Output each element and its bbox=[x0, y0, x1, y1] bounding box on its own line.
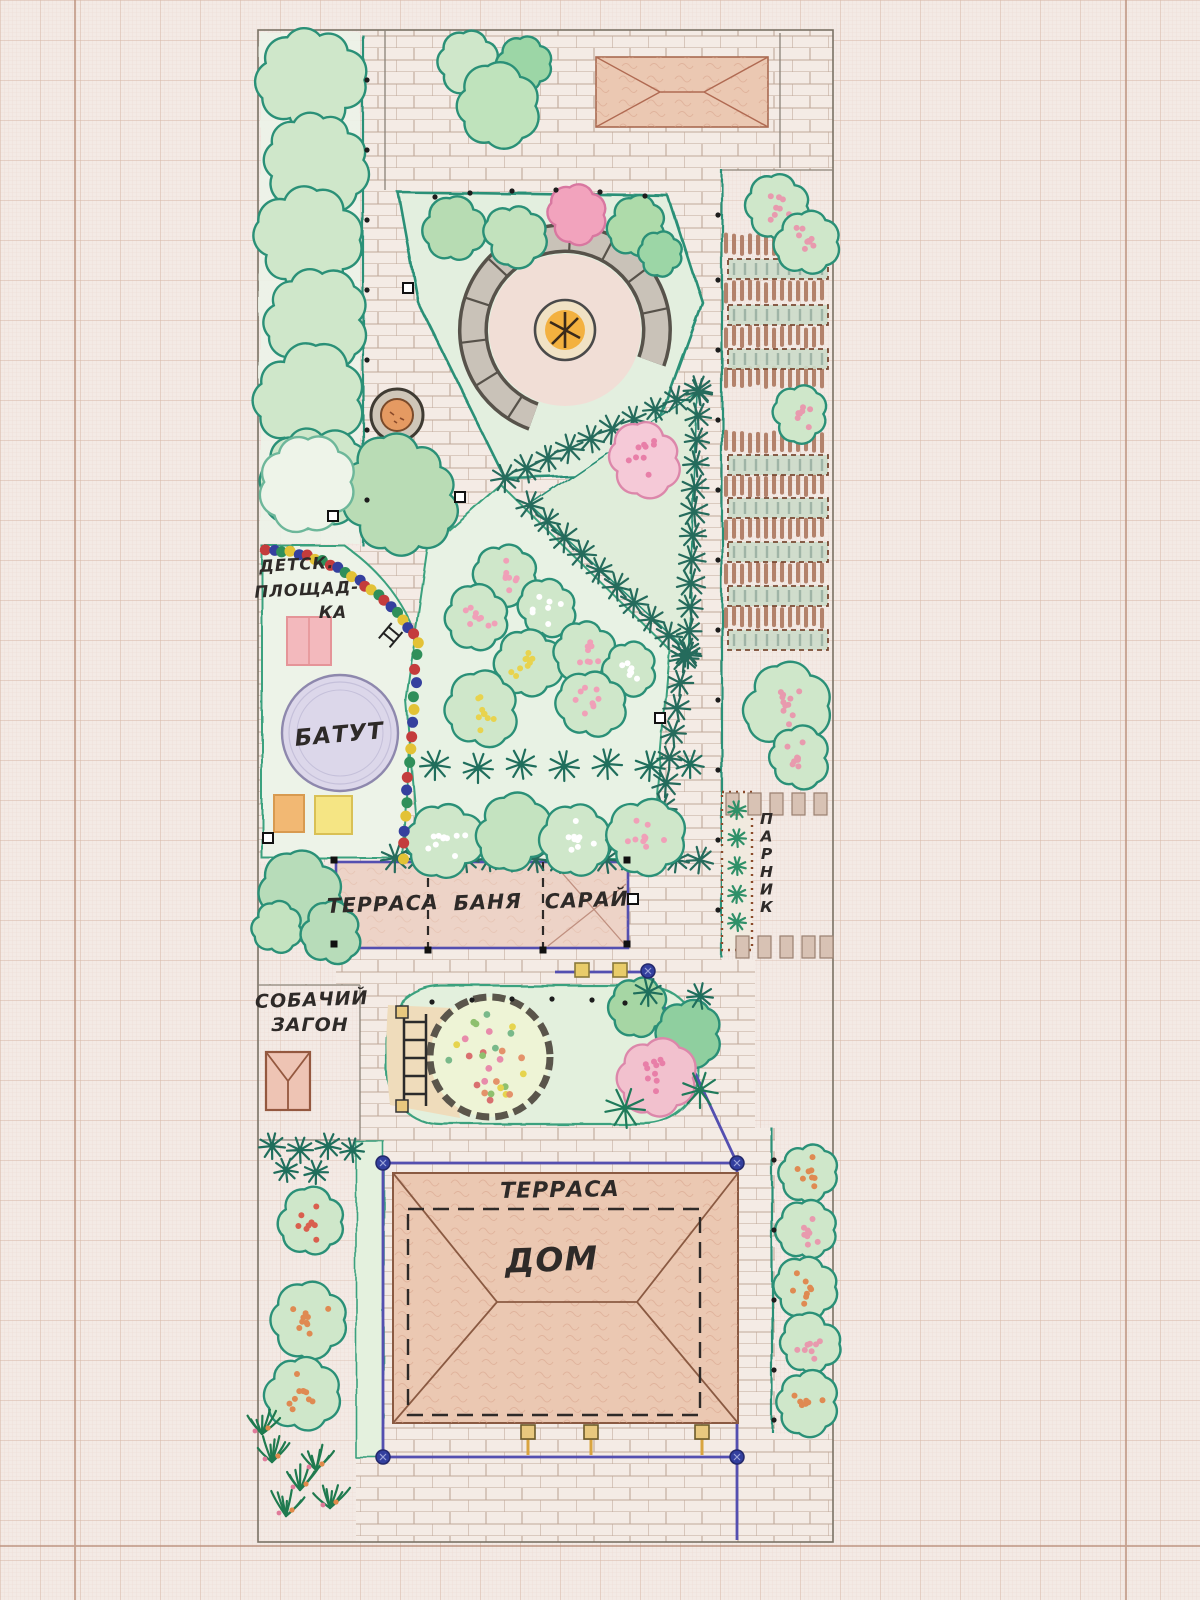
pen-dot bbox=[364, 427, 369, 432]
bead bbox=[413, 637, 424, 648]
tilled-row bbox=[726, 281, 822, 301]
pen-dot bbox=[509, 188, 514, 193]
pen-dot bbox=[715, 487, 720, 492]
terrace-label: ТЕРРАСА bbox=[326, 890, 439, 918]
fence-corner-marker bbox=[730, 1156, 744, 1170]
vegetable-bed bbox=[728, 305, 828, 325]
pen-dot bbox=[715, 767, 720, 772]
pen-dot bbox=[715, 697, 720, 702]
bead bbox=[404, 757, 415, 768]
corner-square-marker bbox=[425, 947, 432, 954]
bead bbox=[399, 826, 410, 837]
bead bbox=[408, 691, 419, 702]
vegetable-bed bbox=[728, 630, 828, 650]
tilled-row bbox=[726, 563, 822, 583]
vegetable-bed bbox=[728, 586, 828, 606]
bead bbox=[260, 544, 271, 555]
pen-dot bbox=[364, 287, 369, 292]
bead bbox=[401, 785, 412, 796]
fence-corner-marker bbox=[641, 964, 655, 978]
vegetable-bed bbox=[728, 349, 828, 369]
corner-square-marker bbox=[331, 941, 338, 948]
open-square-marker bbox=[263, 833, 273, 843]
bead bbox=[411, 649, 422, 660]
greenhouse-label: ПАРНИК bbox=[760, 810, 775, 916]
open-square-marker bbox=[455, 492, 465, 502]
open-square-marker bbox=[628, 894, 638, 904]
pen-dot bbox=[469, 997, 474, 1002]
banya-label: БАНЯ bbox=[453, 889, 522, 915]
bead bbox=[411, 677, 422, 688]
fence-corner-marker bbox=[376, 1156, 390, 1170]
bead bbox=[405, 743, 416, 754]
tilled-row bbox=[726, 518, 822, 538]
open-square-marker bbox=[655, 713, 665, 723]
carport-roof bbox=[596, 57, 768, 127]
garden-plan-photo: ДЕТСК. ПЛОЩАД- КА БАТУТ ТЕРРАСА БАНЯ САР… bbox=[0, 0, 1200, 1600]
dog-pen-label-1: СОБАЧИЙ bbox=[255, 986, 369, 1013]
plan-canvas: ДЕТСК. ПЛОЩАД- КА БАТУТ ТЕРРАСА БАНЯ САР… bbox=[0, 0, 1200, 1600]
corner-square-marker bbox=[624, 857, 631, 864]
pen-dot bbox=[553, 187, 558, 192]
paving-block bbox=[736, 936, 749, 958]
paving-block bbox=[802, 936, 815, 958]
tilled-row bbox=[726, 475, 822, 495]
play-box-orange bbox=[274, 795, 304, 832]
pen-dot bbox=[364, 217, 369, 222]
house bbox=[393, 1173, 738, 1423]
paving-block bbox=[814, 793, 827, 815]
pen-dot bbox=[715, 627, 720, 632]
pen-dot bbox=[597, 189, 602, 194]
tilled-row bbox=[726, 606, 822, 626]
pen-dot bbox=[715, 837, 720, 842]
bead bbox=[406, 731, 417, 742]
pen-dot bbox=[715, 907, 720, 912]
pen-dot bbox=[549, 996, 554, 1001]
bead bbox=[398, 838, 409, 849]
pen-dot bbox=[642, 193, 647, 198]
dog-pen-label-2: ЗАГОН bbox=[270, 1014, 348, 1036]
pen-dot bbox=[364, 77, 369, 82]
pen-dot bbox=[771, 1417, 776, 1422]
pen-dot bbox=[429, 999, 434, 1004]
pen-dot bbox=[364, 357, 369, 362]
house-label: ДОМ bbox=[503, 1238, 599, 1280]
shed-label: САРАЙ bbox=[544, 886, 629, 914]
pen-dot bbox=[715, 417, 720, 422]
open-square-marker bbox=[403, 283, 413, 293]
vegetable-bed bbox=[728, 542, 828, 562]
fence-corner-marker bbox=[730, 1450, 744, 1464]
corner-square-marker bbox=[624, 941, 631, 948]
fence-corner-marker bbox=[376, 1450, 390, 1464]
vegetable-bed bbox=[728, 498, 828, 518]
bead bbox=[407, 717, 418, 728]
pen-dot bbox=[715, 557, 720, 562]
bead bbox=[409, 704, 420, 715]
house-left-green-strip bbox=[356, 1142, 384, 1458]
bush bbox=[775, 1200, 836, 1258]
pen-dot bbox=[715, 347, 720, 352]
pen-dot bbox=[467, 190, 472, 195]
fence-post bbox=[575, 963, 589, 977]
paving-block bbox=[780, 936, 793, 958]
open-square-marker bbox=[328, 511, 338, 521]
bush bbox=[776, 1370, 837, 1437]
bush bbox=[251, 901, 301, 953]
pen-dot bbox=[715, 212, 720, 217]
pen-dot bbox=[432, 194, 437, 199]
pen-dot bbox=[589, 997, 594, 1002]
pen-dot bbox=[771, 1227, 776, 1232]
pen-dot bbox=[364, 147, 369, 152]
play-box-yellow bbox=[315, 796, 352, 834]
pen-dot bbox=[509, 996, 514, 1001]
paving-block bbox=[758, 936, 771, 958]
bush bbox=[769, 726, 828, 790]
bead bbox=[402, 772, 413, 783]
house-terrace-label: ТЕРРАСА bbox=[500, 1177, 620, 1204]
paving-block bbox=[792, 793, 805, 815]
pen-dot bbox=[771, 1297, 776, 1302]
pen-dot bbox=[771, 1157, 776, 1162]
bead bbox=[400, 811, 411, 822]
bead bbox=[402, 797, 413, 808]
bead bbox=[409, 664, 420, 675]
bead bbox=[398, 854, 409, 865]
pen-dot bbox=[715, 277, 720, 282]
pen-dot bbox=[364, 497, 369, 502]
playground-label-1: ДЕТСК. bbox=[258, 553, 335, 576]
dog-pen bbox=[266, 1052, 310, 1110]
corner-square-marker bbox=[540, 947, 547, 954]
corner-square-marker bbox=[331, 857, 338, 864]
pen-dot bbox=[771, 1367, 776, 1372]
vegetable-bed bbox=[728, 455, 828, 475]
fence-post bbox=[613, 963, 627, 977]
tilled-row bbox=[726, 326, 822, 347]
playground-label-3: КА bbox=[319, 603, 347, 622]
pen-dot bbox=[622, 1000, 627, 1005]
paving-block bbox=[820, 936, 833, 958]
